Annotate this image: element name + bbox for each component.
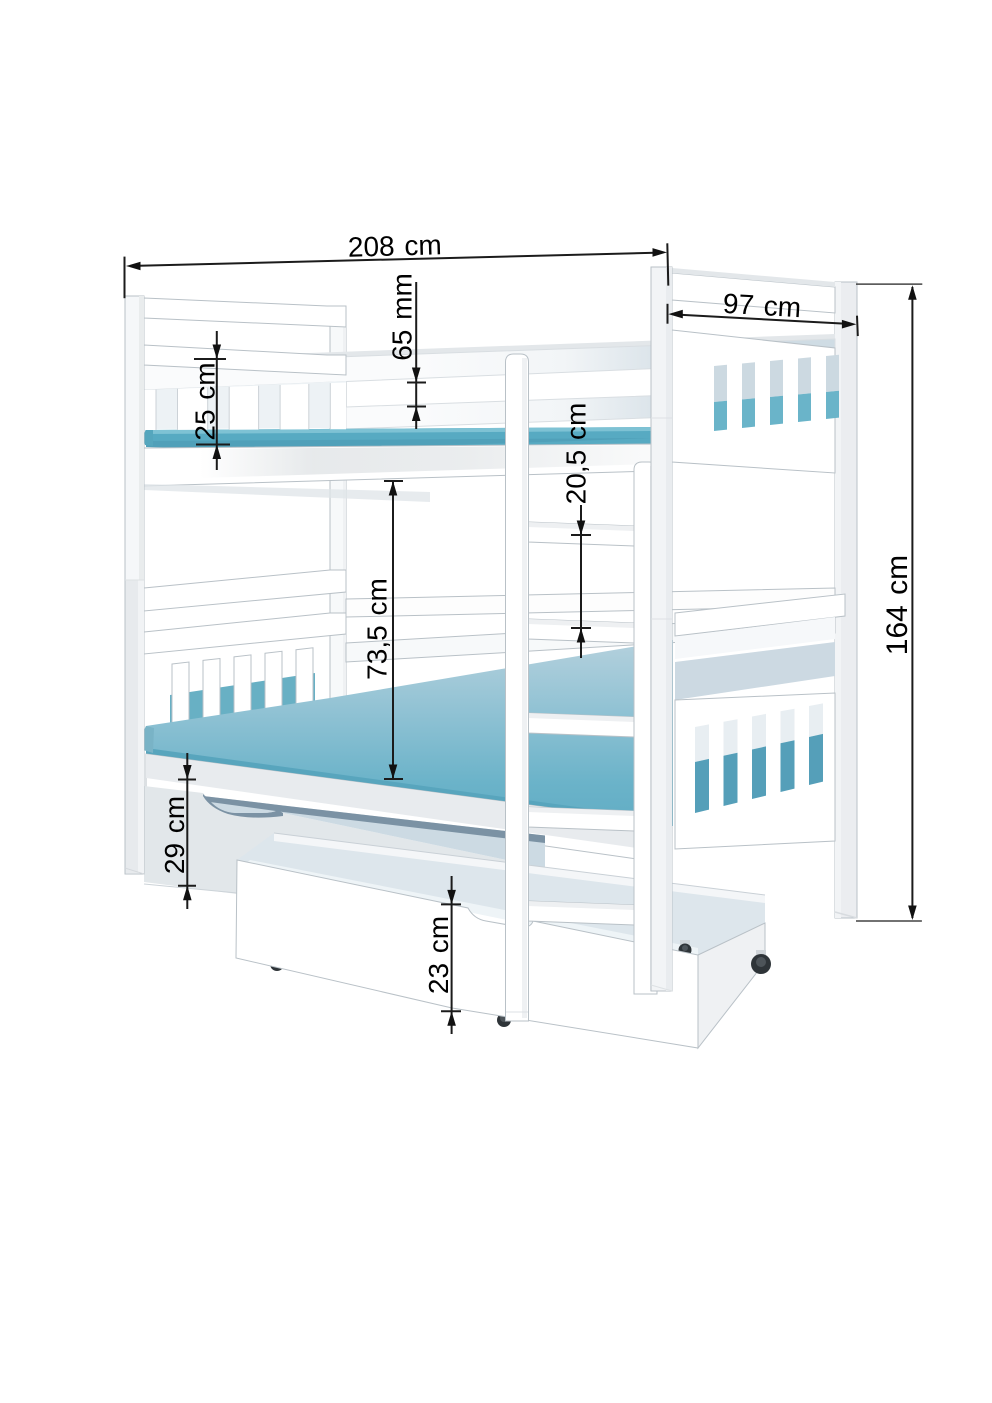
svg-text:20,5 cm: 20,5 cm — [561, 403, 592, 505]
svg-text:65 mm: 65 mm — [387, 273, 418, 361]
svg-text:25 cm: 25 cm — [190, 362, 221, 440]
svg-text:73,5 cm: 73,5 cm — [362, 578, 393, 680]
svg-text:23 cm: 23 cm — [423, 916, 454, 994]
svg-text:164 cm: 164 cm — [881, 555, 914, 655]
svg-text:97 cm: 97 cm — [722, 288, 802, 323]
svg-text:208 cm: 208 cm — [347, 229, 442, 262]
svg-text:29 cm: 29 cm — [159, 796, 190, 874]
